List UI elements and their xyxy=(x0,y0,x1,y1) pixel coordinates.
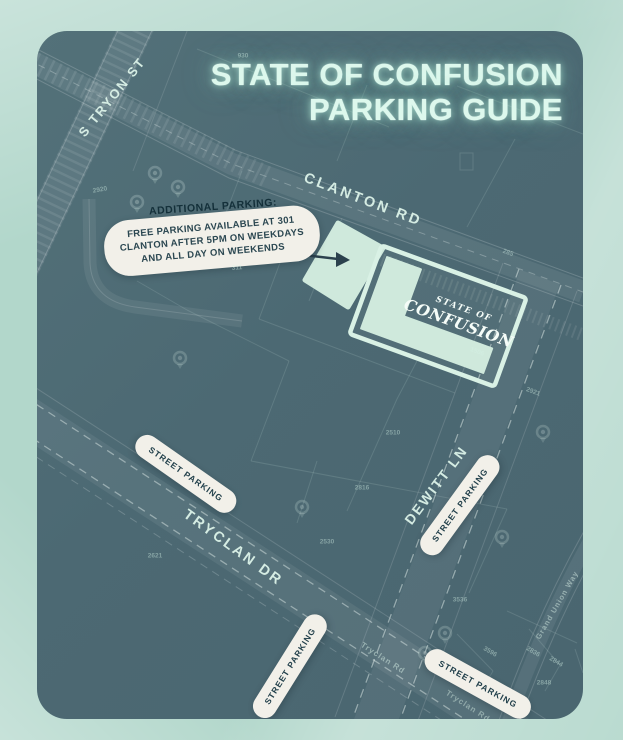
page-title: STATE OF CONFUSION PARKING GUIDE xyxy=(211,57,563,127)
parcel-number: 3536 xyxy=(453,597,467,604)
parcel-number: 2848 xyxy=(537,680,551,687)
map-pin-icon xyxy=(174,352,186,369)
map-pin-icon xyxy=(131,196,143,213)
parking-map: STATE OF CONFUSION STATE OF CONFUSION PA… xyxy=(37,31,583,719)
map-pin-icon xyxy=(296,501,308,518)
page-title-line1: STATE OF CONFUSION xyxy=(211,57,563,92)
map-pin-icon xyxy=(172,181,184,198)
parcel-number: 2510 xyxy=(386,430,400,437)
page-title-line2: PARKING GUIDE xyxy=(211,92,563,127)
parcel-number: 2621 xyxy=(148,553,162,560)
map-pin-icon xyxy=(439,627,451,644)
parcel-number: 2530 xyxy=(320,539,334,546)
parcel-number: 311 xyxy=(232,264,243,272)
map-pin-icon xyxy=(496,531,508,548)
parcel-number: 2816 xyxy=(355,485,369,492)
parcel-number: 930 xyxy=(238,53,249,60)
map-pin-icon xyxy=(149,167,161,184)
map-pin-icon xyxy=(537,426,549,443)
